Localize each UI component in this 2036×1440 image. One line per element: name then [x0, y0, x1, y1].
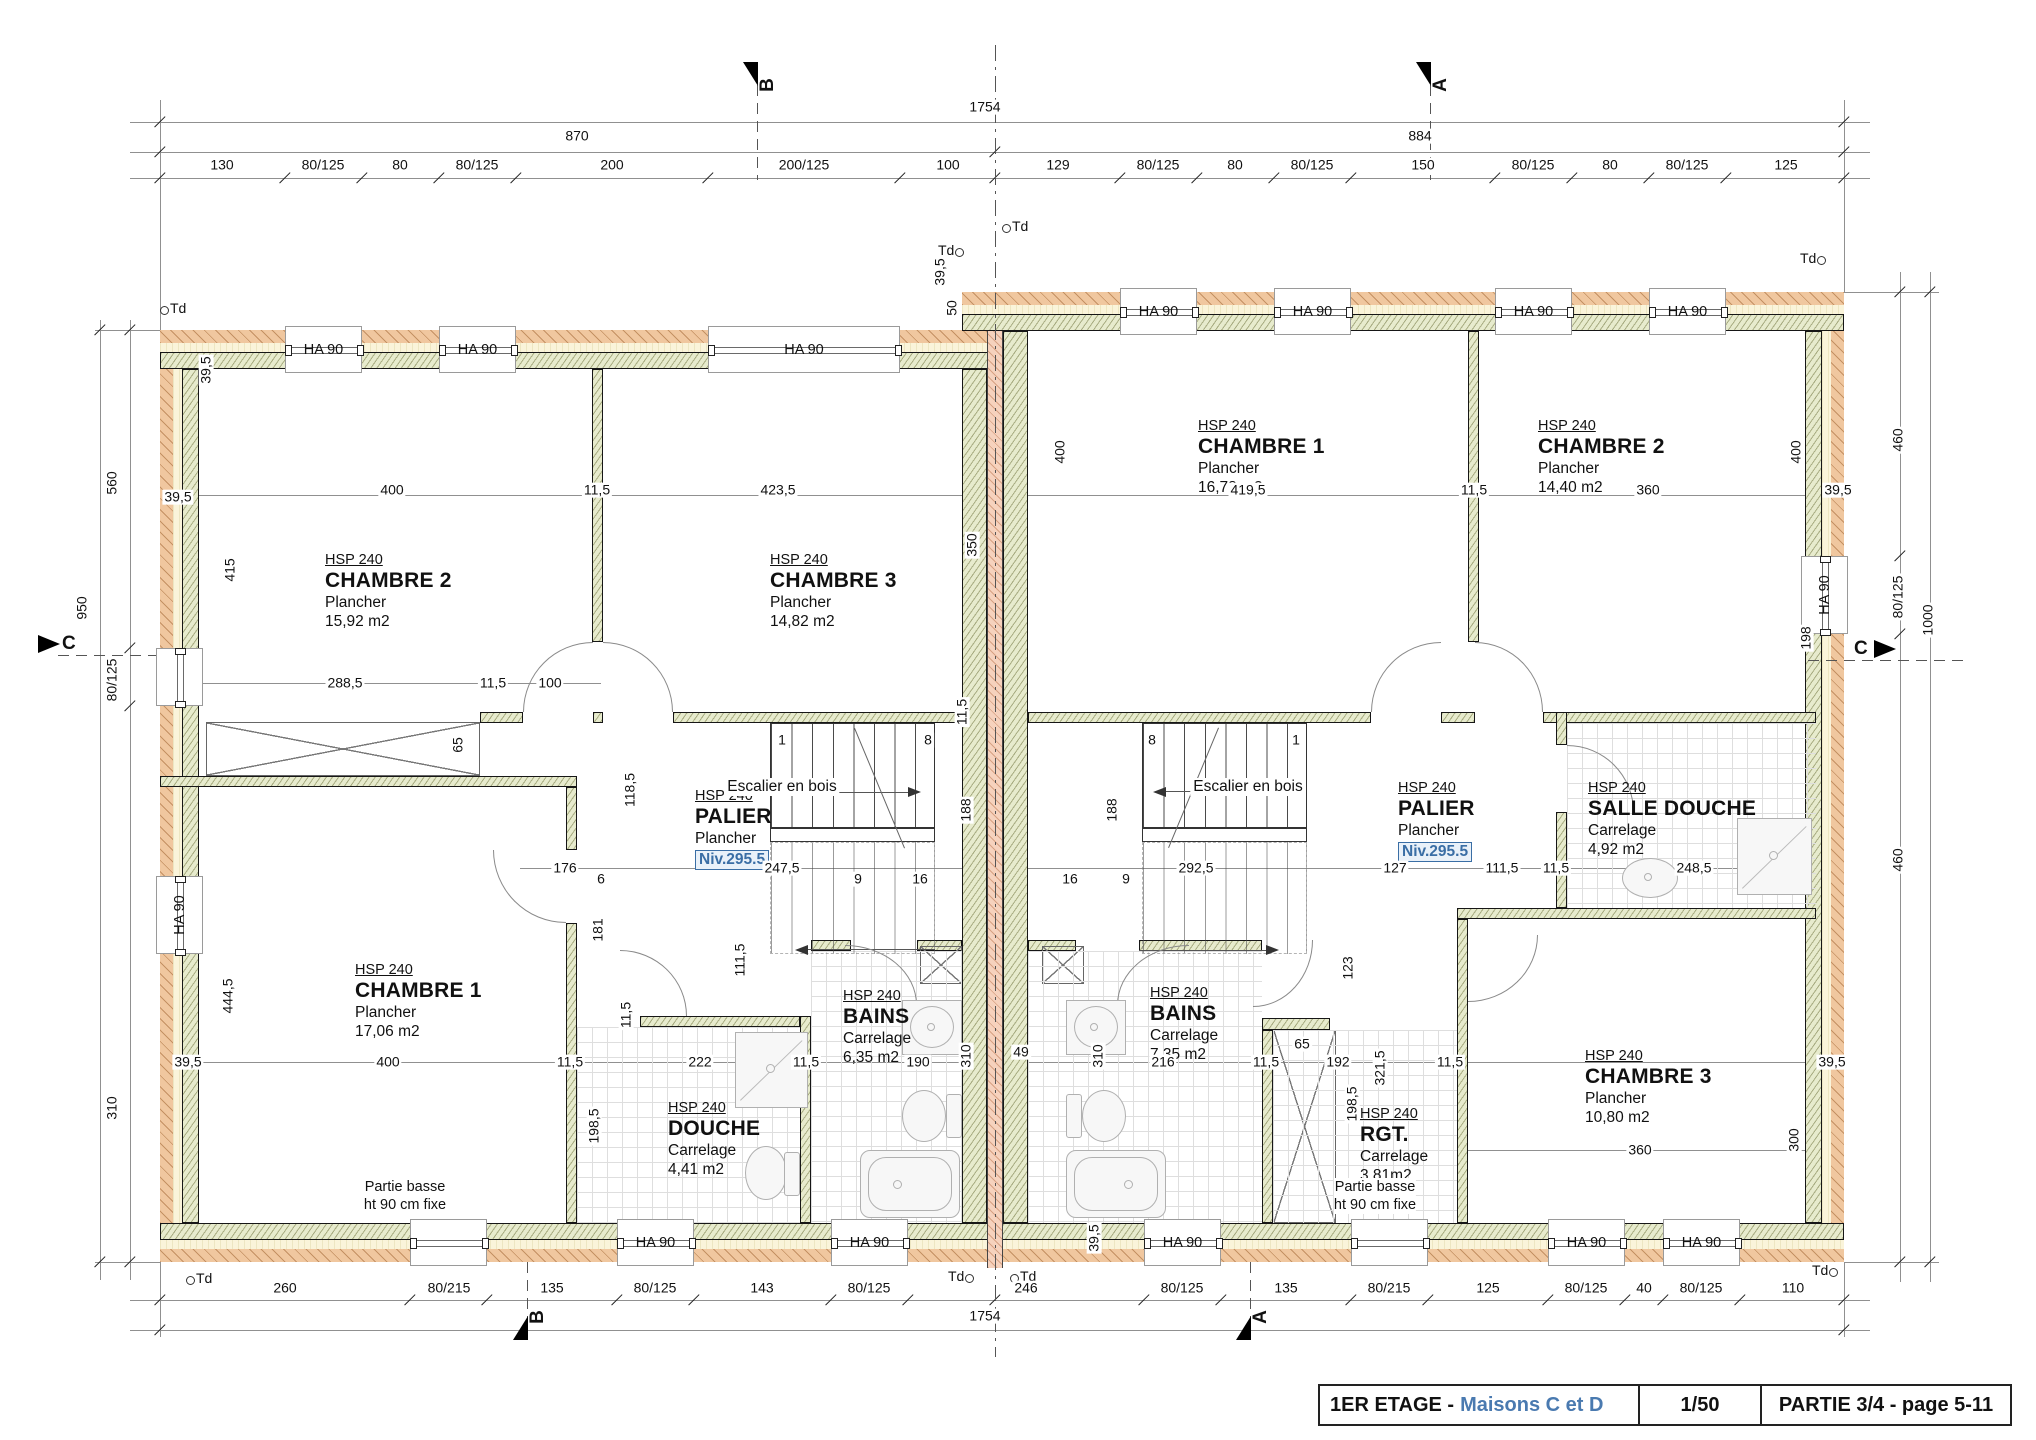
dim-label: 300	[1787, 1126, 1802, 1153]
dim-label: 884	[1406, 129, 1433, 144]
stair-arrow	[1153, 787, 1166, 797]
interior-wall	[1543, 712, 1816, 723]
dim-label: 40	[1634, 1281, 1654, 1296]
td-label: Td	[1812, 1262, 1828, 1278]
dim-label: 11,5	[1541, 861, 1571, 876]
window-frame	[1354, 1240, 1427, 1247]
window-post	[1120, 307, 1127, 318]
dim-label: 50	[945, 298, 960, 318]
section-marker-a-arrow	[1416, 62, 1431, 86]
td-marker: Td	[948, 1268, 974, 1284]
dim-label: 181	[591, 916, 606, 943]
dim-label: 129	[1044, 158, 1071, 173]
room-hsp: HSP 240	[668, 1100, 760, 1116]
dim-label: 216	[1149, 1055, 1176, 1070]
interior-wall	[592, 369, 603, 642]
dim-label: 321,5	[1373, 1048, 1388, 1087]
dim-label: 246	[1012, 1281, 1039, 1296]
interior-wall	[480, 712, 523, 723]
window-label: HA 90	[1682, 1235, 1722, 1251]
dim-label: 248,5	[1674, 861, 1713, 876]
window-post	[439, 345, 446, 356]
shower-drain	[1769, 851, 1778, 860]
td-circle	[1002, 224, 1011, 233]
stairs-label: Escalier en bois	[724, 778, 839, 796]
window-post	[1820, 556, 1831, 563]
dim-label: 39,5	[172, 1055, 203, 1070]
dim-label: 560	[105, 469, 120, 496]
room-label-chambre-2: HSP 240CHAMBRE 2Plancher15,92 m2	[325, 552, 452, 631]
room-label-palier: HSP 240PALIERPlancherNiv.295.5	[1398, 780, 1475, 862]
dim-label: 11,5	[619, 1000, 634, 1030]
window-label: HA 90	[1668, 304, 1708, 320]
td-marker: Td	[1812, 1262, 1838, 1278]
dim-label: 1	[776, 733, 788, 748]
dim-label: 127	[1381, 861, 1408, 876]
window-post	[708, 345, 715, 356]
dimension-line	[160, 100, 161, 330]
dim-label: 39,5	[1822, 483, 1853, 498]
dim-label: 350	[965, 531, 980, 558]
room-hsp: HSP 240	[1398, 780, 1475, 796]
note-partie-basse: Partie basseht 90 cm fixe	[364, 1178, 446, 1214]
stair-landing	[770, 828, 935, 842]
interior-wall	[1457, 908, 1816, 919]
dim-label: 11,5	[955, 697, 970, 727]
room-hsp: HSP 240	[1360, 1106, 1428, 1122]
section-marker-a-arrow	[1236, 1316, 1251, 1340]
room-hsp: HSP 240	[355, 962, 482, 978]
td-marker: Td	[1800, 250, 1826, 266]
bathtub-drain	[1124, 1180, 1133, 1189]
window-label: HA 90	[636, 1235, 676, 1251]
dim-label: 80/125	[632, 1281, 679, 1296]
window-post	[357, 345, 364, 356]
room-info: Carrelage	[843, 1030, 911, 1048]
stairs-label: Escalier en bois	[1190, 778, 1305, 796]
dim-label: 6	[595, 872, 607, 887]
stair-arrow	[908, 787, 921, 797]
dim-label: 16	[1060, 872, 1080, 887]
window-label: HA 90	[850, 1235, 890, 1251]
window-post	[1346, 307, 1353, 318]
section-marker-c-arrow	[1874, 640, 1896, 658]
dimension-line	[130, 1330, 1870, 1331]
dim-label: 135	[1272, 1281, 1299, 1296]
dim-label: 310	[1091, 1042, 1106, 1069]
note-partie-basse: Partie basseht 90 cm fixe	[1334, 1178, 1416, 1214]
window-post	[410, 1238, 417, 1249]
title-block-scale: 1/50	[1640, 1386, 1762, 1424]
party-wall-leaf	[1003, 331, 1028, 1223]
door-arc	[1475, 642, 1543, 712]
section-marker-b-arrow	[743, 62, 758, 86]
room-label-douche: HSP 240DOUCHECarrelage4,41 m2	[668, 1100, 760, 1179]
dim-label: 80/125	[1159, 1281, 1206, 1296]
room-info: 6,35 m2	[843, 1049, 911, 1067]
dim-label: 11,5	[791, 1055, 821, 1070]
window-post	[511, 345, 518, 356]
title-block-part: PARTIE 3/4 - page 5-11	[1762, 1386, 2010, 1424]
dim-label: 400	[374, 1055, 401, 1070]
window-ha90	[156, 648, 203, 706]
td-circle	[955, 248, 964, 257]
stair-flight	[770, 723, 935, 828]
dim-label: 80/125	[846, 1281, 893, 1296]
td-marker: Td	[160, 300, 186, 316]
td-label: Td	[948, 1268, 964, 1284]
dim-label: 9	[852, 872, 864, 887]
dim-label: 80/125	[1289, 158, 1336, 173]
room-label-chambre-1: HSP 240CHAMBRE 1Plancher17,06 m2	[355, 962, 482, 1041]
stair-flight	[1142, 723, 1307, 828]
dim-label: 80	[1225, 158, 1245, 173]
dim-label: 400	[1789, 438, 1804, 465]
dim-label: 176	[551, 861, 578, 876]
dim-label: 11,5	[478, 676, 508, 691]
room-hsp: HSP 240	[1585, 1048, 1712, 1064]
room-name: CHAMBRE 2	[325, 569, 452, 593]
note-line: ht 90 cm fixe	[1334, 1196, 1416, 1214]
dim-label: 460	[1891, 846, 1906, 873]
dim-label: 950	[75, 594, 90, 621]
room-hsp: HSP 240	[1588, 780, 1756, 796]
section-marker-a: A	[1430, 78, 1452, 92]
dimension-line	[198, 495, 962, 496]
dim-label: 360	[1634, 483, 1661, 498]
toilet-bowl	[1082, 1090, 1126, 1142]
dim-label: 111,5	[1484, 861, 1521, 876]
interior-wall	[1457, 919, 1468, 1223]
stair-arrow	[795, 945, 808, 955]
dim-label: 460	[1891, 426, 1906, 453]
interior-wall	[640, 1016, 800, 1027]
section-marker-b: B	[527, 1310, 549, 1324]
window-post	[1144, 1238, 1151, 1249]
section-marker-c: C	[62, 633, 76, 655]
room-info: 17,06 m2	[355, 1023, 482, 1041]
dim-label: 188	[959, 796, 974, 823]
td-marker: Td	[186, 1270, 212, 1286]
dim-label: 80/125	[300, 158, 347, 173]
interior-wall	[1028, 712, 1371, 723]
dim-label: 80/215	[426, 1281, 473, 1296]
window-label: HA 90	[1567, 1235, 1607, 1251]
window-label: HA 90	[784, 342, 824, 358]
dimension-line	[130, 122, 1870, 123]
interior-wall	[1441, 712, 1475, 723]
dim-label: 39,5	[1087, 1222, 1102, 1253]
wall-cladding	[1831, 331, 1844, 1223]
dim-label: 125	[1772, 158, 1799, 173]
window-post	[175, 648, 186, 655]
room-name: CHAMBRE 3	[1585, 1065, 1712, 1089]
note-line: Partie basse	[1334, 1178, 1416, 1196]
room-info: Plancher	[1198, 460, 1325, 478]
dim-label: 143	[748, 1281, 775, 1296]
room-label-salle-douche: HSP 240SALLE DOUCHECarrelage4,92 m2	[1588, 780, 1756, 859]
room-info: Carrelage	[1588, 822, 1756, 840]
dim-label: 222	[686, 1055, 713, 1070]
dim-label: 200/125	[777, 158, 832, 173]
room-info: Plancher	[325, 594, 452, 612]
door-arc	[1468, 935, 1538, 1002]
room-hsp: HSP 240	[843, 988, 911, 1004]
room-info: Plancher	[1585, 1090, 1712, 1108]
dim-label: 247,5	[762, 861, 801, 876]
room-name: RGT.	[1360, 1123, 1428, 1147]
shower-drain	[766, 1064, 775, 1073]
window-post	[1820, 629, 1831, 636]
window-post	[482, 1238, 489, 1249]
dim-label: 11,5	[1435, 1055, 1465, 1070]
window-post	[1548, 1238, 1555, 1249]
room-level-badge: Niv.295.5	[695, 850, 769, 870]
dim-label: 1754	[967, 100, 1002, 115]
dim-label: 310	[959, 1042, 974, 1069]
window-post	[175, 701, 186, 708]
room-info: Carrelage	[1150, 1027, 1218, 1045]
room-hsp: HSP 240	[325, 552, 452, 568]
window-ha90	[1351, 1219, 1428, 1266]
dim-label: 111,5	[733, 942, 748, 979]
dim-label: 400	[378, 483, 405, 498]
window-label: HA 90	[304, 342, 344, 358]
td-label: Td	[196, 1270, 212, 1286]
room-hsp: HSP 240	[1538, 418, 1665, 434]
dim-label: 11,5	[582, 483, 612, 498]
dim-label: 8	[1146, 733, 1158, 748]
window-post	[895, 345, 902, 356]
room-label-chambre-3: HSP 240CHAMBRE 3Plancher10,80 m2	[1585, 1048, 1712, 1127]
td-label: Td	[1012, 218, 1028, 234]
title-block: 1ER ETAGE - Maisons C et D 1/50 PARTIE 3…	[1318, 1384, 2012, 1426]
room-name: CHAMBRE 1	[1198, 435, 1325, 459]
wall-layer	[1822, 331, 1831, 1223]
room-name: BAINS	[843, 1005, 911, 1029]
chimney-box	[206, 722, 480, 776]
dimension-line	[1844, 292, 1939, 293]
interior-wall	[593, 712, 603, 723]
bathtub-inner	[1074, 1157, 1158, 1211]
room-name: PALIER	[695, 805, 772, 829]
dim-label: 125	[1474, 1281, 1501, 1296]
dimension-line	[130, 320, 131, 1280]
dim-label: 80/125	[454, 158, 501, 173]
dim-label: 360	[1626, 1143, 1653, 1158]
window-post	[1620, 1238, 1627, 1249]
interior-wall	[160, 776, 577, 787]
window-label: HA 90	[1514, 304, 1554, 320]
window-post	[1274, 307, 1281, 318]
window-post	[1216, 1238, 1223, 1249]
window-label: HA 90	[1139, 304, 1179, 320]
window-post	[903, 1238, 910, 1249]
door-arc	[1371, 642, 1441, 712]
dim-label: 80/125	[1664, 158, 1711, 173]
sink-drain	[1644, 873, 1652, 881]
interior-wall	[673, 712, 962, 723]
dim-label: 39,5	[1816, 1055, 1847, 1070]
note-line: Partie basse	[364, 1178, 446, 1196]
window-label: HA 90	[1817, 575, 1833, 615]
dimension-line	[100, 320, 101, 1280]
dim-label: 415	[223, 556, 238, 583]
window-label: HA 90	[172, 895, 188, 935]
window-label: HA 90	[1163, 1235, 1203, 1251]
dim-label: 39,5	[162, 490, 193, 505]
stair-landing	[1142, 828, 1307, 842]
dimension-line	[130, 178, 1870, 179]
room-name: CHAMBRE 3	[770, 569, 897, 593]
room-info: 15,92 m2	[325, 613, 452, 631]
td-circle	[1817, 256, 1826, 265]
room-info: 4,92 m2	[1588, 841, 1756, 859]
section-marker-c-arrow	[38, 635, 60, 653]
dim-label: 11,5	[555, 1055, 585, 1070]
dim-label: 260	[271, 1281, 298, 1296]
dim-label: 80	[1600, 158, 1620, 173]
sink-drain	[927, 1023, 935, 1031]
td-label: Td	[1800, 250, 1816, 266]
td-circle	[1829, 1268, 1838, 1277]
dim-label: 11,5	[1251, 1055, 1281, 1070]
room-info: Carrelage	[1360, 1148, 1428, 1166]
td-circle	[186, 1276, 195, 1285]
room-hsp: HSP 240	[1198, 418, 1325, 434]
dim-label: 65	[451, 735, 466, 755]
window-post	[1423, 1238, 1430, 1249]
dim-label: 198	[1799, 624, 1814, 651]
window-post	[1663, 1238, 1670, 1249]
room-label-rgt: HSP 240RGT.Carrelage3,81m2	[1360, 1106, 1428, 1185]
sink-drain	[1090, 1023, 1098, 1031]
party-centerline	[995, 45, 996, 1357]
td-label: Td	[170, 300, 186, 316]
stair-flight-below	[1142, 842, 1307, 954]
room-info: 14,82 m2	[770, 613, 897, 631]
dim-label: 135	[538, 1281, 565, 1296]
floor-plan-canvas: 1ER ETAGE - Maisons C et D 1/50 PARTIE 3…	[0, 0, 2036, 1440]
dim-label: 65	[1292, 1037, 1312, 1052]
toilet-bowl	[902, 1090, 946, 1142]
dim-label: 80/125	[1678, 1281, 1725, 1296]
td-circle	[160, 306, 169, 315]
door-arc	[603, 642, 673, 712]
room-label-bains: HSP 240BAINSCarrelage6,35 m2	[843, 988, 911, 1067]
window-post	[617, 1238, 624, 1249]
window-post	[1649, 307, 1656, 318]
dim-label: 130	[208, 158, 235, 173]
dim-label: 292,5	[1176, 861, 1215, 876]
room-name: BAINS	[1150, 1002, 1218, 1026]
room-hsp: HSP 240	[1150, 985, 1218, 1001]
dim-label: 80	[390, 158, 410, 173]
dim-label: 80/125	[105, 657, 120, 704]
dimension-line	[130, 152, 1870, 153]
section-marker-b-arrow	[513, 1316, 528, 1340]
dim-label: 39,5	[933, 256, 948, 287]
dim-label: 1754	[967, 1309, 1002, 1324]
td-circle	[965, 1274, 974, 1283]
room-name: SALLE DOUCHE	[1588, 797, 1756, 821]
room-name: CHAMBRE 2	[1538, 435, 1665, 459]
dim-label: 188	[1105, 796, 1120, 823]
dimension-line	[1844, 100, 1845, 292]
window-frame	[413, 1240, 486, 1247]
title-highlight: Maisons C et D	[1460, 1394, 1603, 1417]
dim-label: 8	[922, 733, 934, 748]
room-hsp: HSP 240	[770, 552, 897, 568]
dim-label: 1	[1290, 733, 1302, 748]
dim-label: 423,5	[758, 483, 797, 498]
dim-label: 49	[1011, 1045, 1031, 1060]
window-post	[1721, 307, 1728, 318]
window-post	[1192, 307, 1199, 318]
title-block-title: 1ER ETAGE - Maisons C et D	[1320, 1386, 1640, 1424]
section-marker-a: A	[1250, 1310, 1272, 1324]
section-marker-c: C	[1854, 638, 1868, 660]
dim-label: 11,5	[1459, 483, 1489, 498]
dim-label: 110	[1780, 1281, 1806, 1296]
dimension-line	[130, 1300, 1870, 1301]
dim-label: 118,5	[623, 771, 638, 809]
room-info: Plancher	[695, 830, 772, 848]
room-info: 10,80 m2	[1585, 1109, 1712, 1127]
dim-label: 870	[563, 129, 590, 144]
room-level-badge: Niv.295.5	[1398, 842, 1472, 862]
room-label-palier: HSP 240PALIERPlancherNiv.295.5	[695, 788, 772, 870]
room-label-chambre-3: HSP 240CHAMBRE 3Plancher14,82 m2	[770, 552, 897, 631]
dim-label: 198,5	[1345, 1084, 1360, 1123]
toilet-tank	[946, 1094, 962, 1138]
interior-wall	[1556, 712, 1567, 745]
window-label: HA 90	[1293, 304, 1333, 320]
dim-label: 9	[1120, 872, 1132, 887]
dimension-line	[1900, 272, 1901, 1282]
room-info: Plancher	[1398, 822, 1475, 840]
dim-label: 190	[904, 1055, 931, 1070]
dim-label: 80/125	[1891, 574, 1906, 621]
room-name: DOUCHE	[668, 1117, 760, 1141]
room-label-bains: HSP 240BAINSCarrelage7,35 m2	[1150, 985, 1218, 1064]
window-frame	[177, 651, 184, 705]
dim-label: 39,5	[199, 354, 214, 385]
dim-label: 400	[1053, 438, 1068, 465]
window-post	[1351, 1238, 1358, 1249]
dim-label: 288,5	[325, 676, 364, 691]
dim-label: 100	[536, 676, 563, 691]
dim-label: 419,5	[1228, 483, 1267, 498]
window-post	[689, 1238, 696, 1249]
room-info: Carrelage	[668, 1142, 760, 1160]
bathtub-drain	[893, 1180, 902, 1189]
dim-label: 100	[934, 158, 961, 173]
section-line-b	[757, 85, 758, 180]
dimension-line	[1930, 272, 1931, 1282]
section-marker-b: B	[757, 78, 779, 92]
title-prefix: 1ER ETAGE -	[1330, 1394, 1454, 1417]
window-ha90	[410, 1219, 487, 1266]
toilet-tank	[1066, 1094, 1082, 1138]
dim-label: 198,5	[587, 1106, 602, 1145]
room-name: CHAMBRE 1	[355, 979, 482, 1003]
td-marker: Td	[1002, 218, 1028, 234]
room-info: 4,41 m2	[668, 1161, 760, 1179]
window-post	[1735, 1238, 1742, 1249]
window-post	[175, 949, 186, 956]
room-info: Plancher	[355, 1004, 482, 1022]
